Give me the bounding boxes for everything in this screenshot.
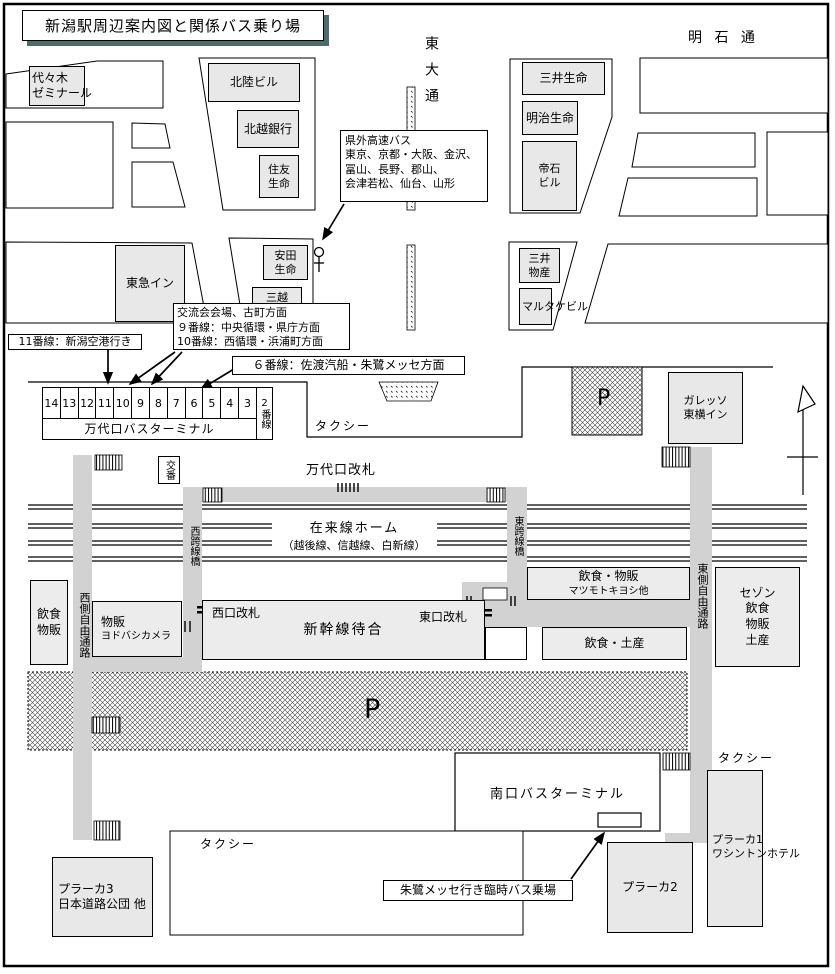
- arrow-stall-6: [201, 369, 234, 389]
- bus-stall: 6: [186, 388, 204, 418]
- taxi-label-east: タクシー: [718, 749, 774, 766]
- bus-stall: 10: [114, 388, 132, 418]
- bandai-bus-terminal: 14 13 12 11 10 9 8 7 6 5 4 3 万代口バスターミナル …: [42, 387, 273, 440]
- median-strip-lower: [407, 245, 415, 330]
- west-link-strip: [73, 657, 202, 672]
- arrow-temp-bus-stop: [571, 833, 604, 879]
- block-ne-2: [632, 133, 755, 167]
- block-small-2: [132, 162, 185, 207]
- east-overpass-label: 東跨線橋: [510, 516, 525, 556]
- parking-label-north: P: [597, 386, 610, 411]
- koban-label: 交番: [162, 460, 177, 480]
- stairs-icon: [94, 821, 120, 840]
- stairs-icon: [487, 488, 505, 502]
- arrow-highway-bus: [323, 204, 344, 239]
- building-yoyogi: 代々木 ゼミナール: [29, 66, 85, 106]
- building-plaka3: プラーカ3 日本道路公団 他: [52, 857, 153, 937]
- bandai-gate-label: 万代口改札: [306, 459, 376, 478]
- bus-stop-icon: [314, 248, 324, 273]
- shop-yodobashi-sublabel: ヨドバシカメラ: [101, 630, 171, 643]
- page-title: 新潟駅周辺案内図と関係バス乗り場: [22, 10, 324, 41]
- building-mitsui-bussan: 三井 物産: [519, 248, 560, 283]
- bus-stall: 13: [61, 388, 79, 418]
- bus-stall: 7: [168, 388, 186, 418]
- small-room: [485, 627, 527, 660]
- building-marutake: マルタケビル: [519, 288, 552, 325]
- taxi-label-north: タクシー: [315, 417, 371, 434]
- shop-saison: セゾン 飲食 物販 土産: [715, 567, 800, 667]
- bus-stall-2: 2番線: [256, 388, 272, 439]
- bus-terminal-name: 万代口バスターミナル: [43, 418, 256, 439]
- south-terminal-label: 南口バスターミナル: [455, 783, 660, 802]
- stairs-icon: [663, 753, 690, 770]
- west-overpass-corridor: [183, 487, 202, 660]
- block-east-wide: [585, 244, 828, 323]
- callout-temp-bus-stop: 朱鷺メッセ行き臨時バス乗場: [383, 880, 573, 901]
- callout-highway-bus: 県外高速バス 東京、京都・大阪、金沢、 冨山、長野、郡山、 会津若松、仙台、山形: [340, 130, 488, 202]
- stairs-icon: [662, 447, 690, 467]
- concourse-strip: [183, 487, 527, 502]
- temp-bus-stop-marker: [598, 813, 641, 827]
- bus-stall: 3: [239, 388, 256, 418]
- bus-stall: 8: [150, 388, 168, 418]
- building-hokuriku: 北陸ビル: [208, 63, 300, 102]
- callout-bus-line-11: 11番線：新潟空港行き: [8, 334, 142, 350]
- callout-bus-line-6: ６番線：佐渡汽船・朱鷺メッセ方面: [232, 356, 465, 375]
- north-compass-icon: [787, 386, 818, 495]
- east-concourse: [485, 600, 692, 627]
- conventional-lines-label: （越後線、信越線、白新線）: [264, 537, 444, 553]
- traffic-island: [379, 382, 438, 401]
- shop-yodobashi-label: 物販: [101, 615, 125, 631]
- building-plaka1: プラーカ1 ワシントンホテル: [707, 770, 763, 927]
- shop-yodobashi: 物販 ヨドバシカメラ: [92, 601, 182, 657]
- block-ne-4: [767, 132, 828, 215]
- koban-box: 交番: [158, 456, 180, 484]
- taxi-label-south: タクシー: [200, 835, 256, 852]
- bus-stall-row: 14 13 12 11 10 9 8 7 6 5 4 3: [43, 388, 256, 419]
- building-mitsui-life: 三井生命: [522, 62, 605, 95]
- parking-south: [28, 672, 687, 750]
- east-passage-label: 東側自由通路: [694, 563, 710, 629]
- arrow-stall-10: [130, 352, 175, 384]
- west-passage-label: 西側自由通路: [76, 592, 92, 658]
- building-teiseki: 帝石 ビル: [522, 141, 577, 211]
- east-gate-label: 東口改札: [419, 608, 467, 625]
- bus-stall: 12: [79, 388, 97, 418]
- building-sumitomo-life: 住友 生命: [259, 155, 299, 198]
- block-small-1: [132, 123, 170, 148]
- bus-stall: 9: [132, 388, 150, 418]
- building-hokuetsu-bank: 北越銀行: [237, 110, 299, 148]
- block-ne-1: [640, 58, 828, 113]
- parking-label-south: P: [364, 694, 380, 725]
- bus-stall: 14: [43, 388, 61, 418]
- building-galesso-toyoko-inn: ガレッソ 東横イン: [668, 372, 743, 444]
- shop-matsumoto-sublabel: マツモトキヨシ他: [569, 585, 649, 598]
- conventional-platform-label: 在来線ホーム: [272, 517, 437, 536]
- stairs-icon: [95, 455, 122, 470]
- bus-stall: 5: [203, 388, 221, 418]
- west-overpass-label: 西跨線橋: [186, 526, 201, 566]
- street-label-higashi-odori: 東大通: [421, 36, 441, 114]
- callout-bus-lines-9-10: 交流会会場、古町方面 ９番線：中央循環・県庁方面 10番線：西循環・浜浦町方面: [173, 303, 350, 350]
- building-yasuda-life: 安田 生命: [263, 245, 308, 280]
- east-gate-notch: [483, 588, 507, 600]
- shop-matsumoto-label: 飲食・物販: [578, 569, 638, 585]
- station-area-map: 新潟駅周辺案内図と関係バス乗り場 明 石 通 東大通 代々木 ゼミナール 北陸ビ…: [0, 0, 835, 974]
- building-plaka2: プラーカ2: [607, 842, 693, 933]
- street-label-akashi: 明 石 通: [688, 27, 759, 47]
- bus-stall-2-label: 2番線: [257, 398, 272, 429]
- bus-stall: 11: [96, 388, 114, 418]
- west-gate-label: 西口改札: [212, 604, 260, 621]
- block-ne-3: [619, 178, 757, 216]
- building-meiji-life: 明治生命: [522, 101, 578, 135]
- shop-west: 飲食 物販: [30, 580, 68, 665]
- shop-matsumoto: 飲食・物販 マツモトキヨシ他: [527, 567, 690, 600]
- block-west: [6, 122, 113, 208]
- bus-stall: 4: [221, 388, 239, 418]
- east-passage-foot: [665, 833, 692, 842]
- stairs-icon: [203, 488, 222, 502]
- stairs-icon: [92, 717, 120, 733]
- shop-food-souvenir: 飲食・土産: [542, 627, 687, 660]
